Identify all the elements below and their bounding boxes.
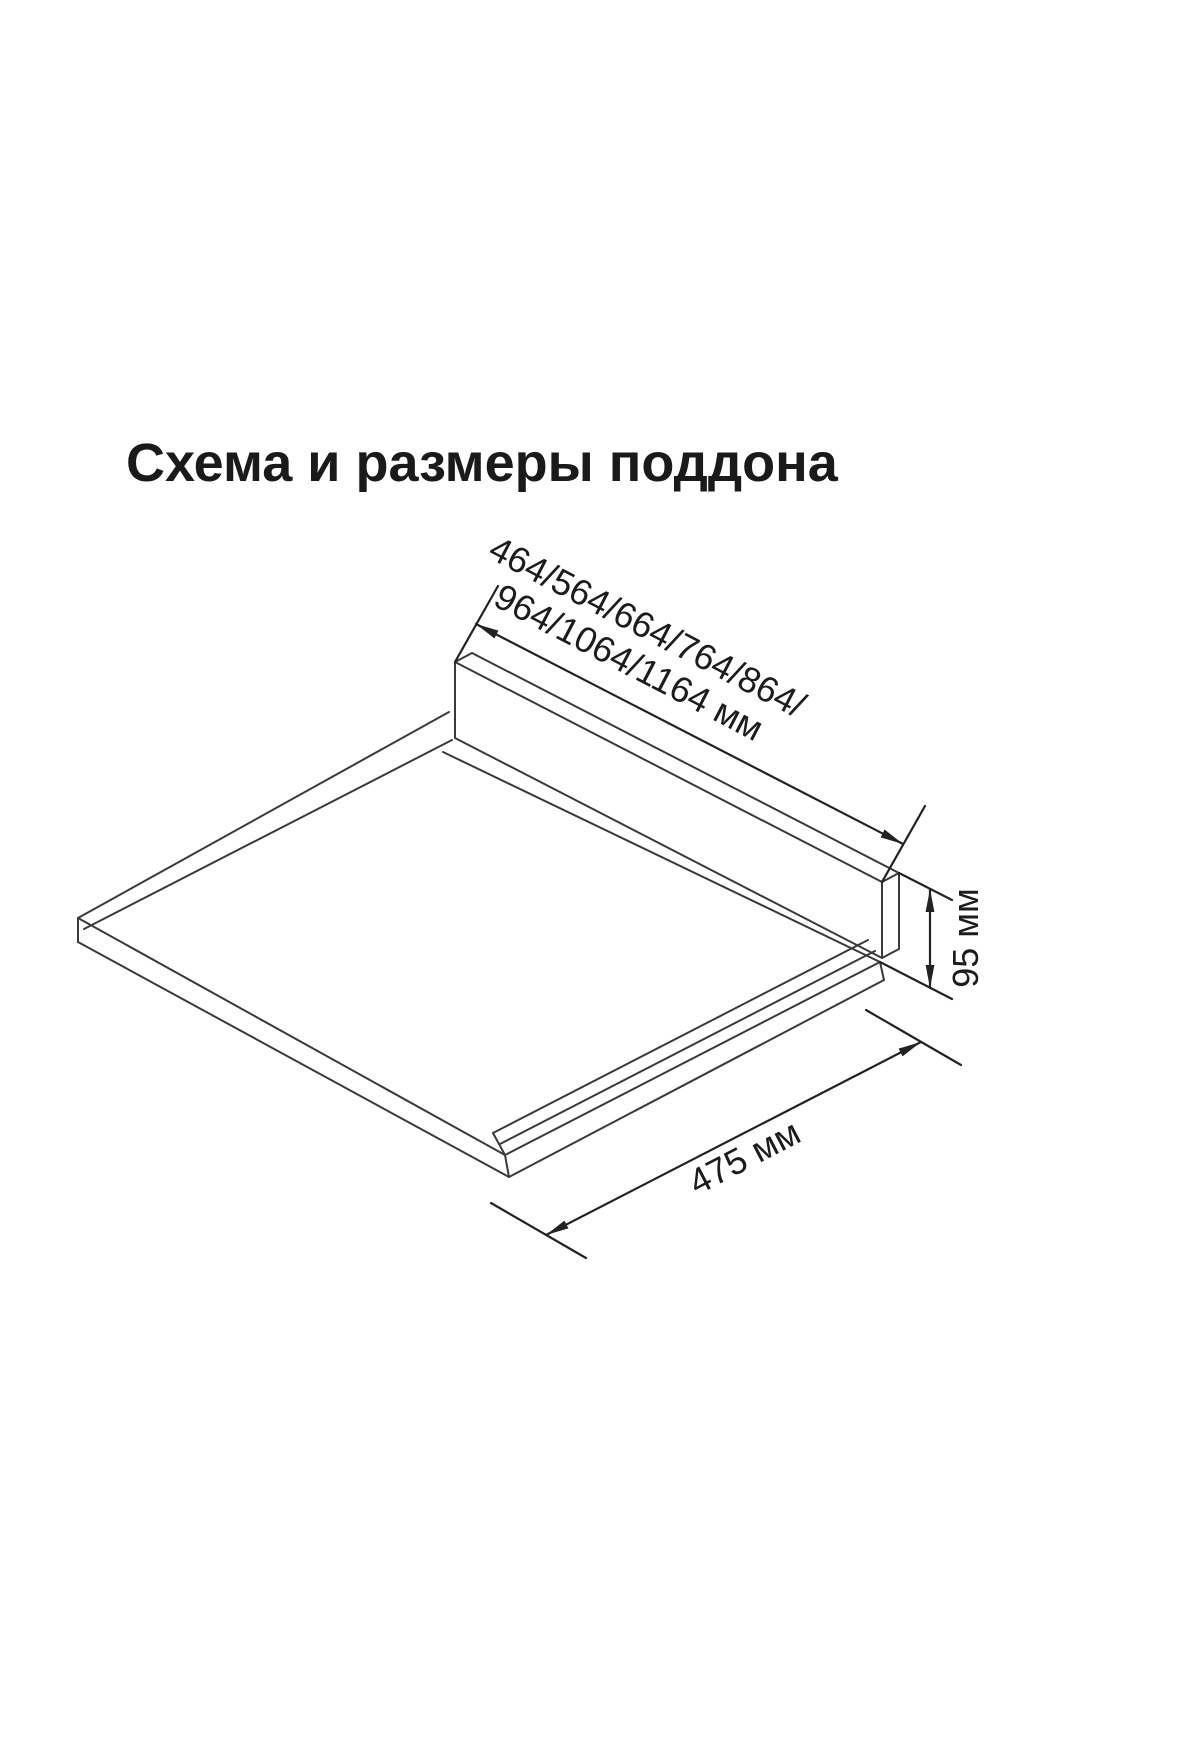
pallet-outline bbox=[78, 653, 899, 1177]
height-dimension: 95 мм bbox=[880, 873, 986, 999]
depth-extension-tick-right bbox=[866, 1010, 961, 1065]
depth-dimension: 475 мм bbox=[491, 1010, 961, 1258]
pallet-diagram: 464/564/664/764/864/ 964/1064/1164 мм 95… bbox=[0, 0, 1200, 1760]
depth-extension-tick-left bbox=[491, 1203, 586, 1258]
height-dimension-label: 95 мм bbox=[945, 888, 986, 988]
height-extension-tick-bottom bbox=[880, 962, 952, 999]
width-dimension: 464/564/664/764/864/ 964/1064/1164 мм bbox=[455, 528, 925, 882]
page: Схема и размеры поддона bbox=[0, 0, 1200, 1760]
base-tray bbox=[78, 712, 884, 1177]
depth-dimension-label: 475 мм bbox=[682, 1111, 807, 1203]
